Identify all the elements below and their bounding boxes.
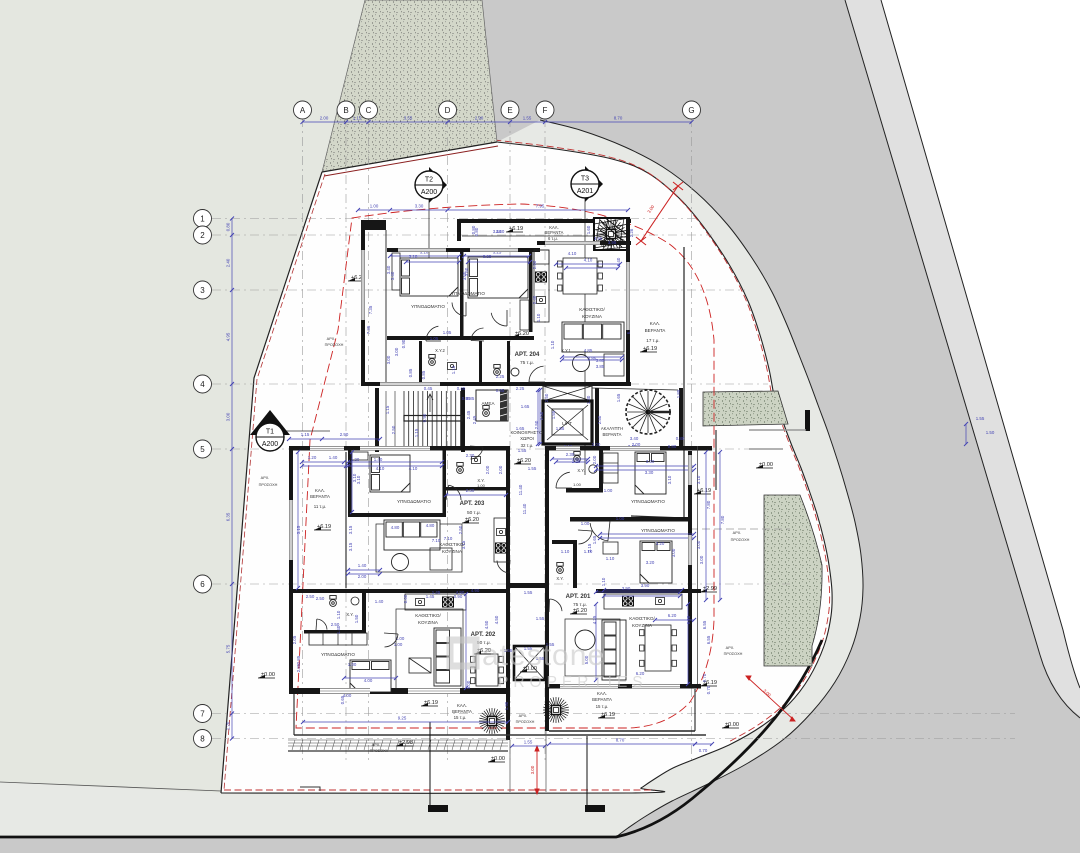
svg-text:A200: A200 [262,441,278,448]
svg-text:1.40: 1.40 [329,455,338,460]
svg-text:X.Y.2: X.Y.2 [435,348,445,353]
svg-text:1.40: 1.40 [375,599,384,604]
svg-text:1.55: 1.55 [976,416,985,421]
svg-text:2.50: 2.50 [458,525,463,534]
svg-text:1.50: 1.50 [354,614,359,623]
svg-text:1.15: 1.15 [353,116,362,121]
svg-text:6.55: 6.55 [702,620,707,629]
svg-text:3.00: 3.00 [394,347,399,356]
svg-text:3.90: 3.90 [622,586,631,591]
svg-text:ΠΡΟΣΟΧΗ: ΠΡΟΣΟΧΗ [370,749,389,753]
svg-text:2.05: 2.05 [292,635,297,644]
svg-text:ΒΕΡΑΝΤΑ: ΒΕΡΑΝΤΑ [592,697,612,702]
svg-text:1.55: 1.55 [551,410,556,419]
svg-text:3.40: 3.40 [386,265,391,274]
svg-text:2.00: 2.00 [592,455,597,464]
svg-text:0.85: 0.85 [421,370,426,379]
svg-text:2.40: 2.40 [532,295,537,304]
svg-text:ΚΑΛ.: ΚΑΛ. [650,321,660,326]
svg-text:1.65: 1.65 [521,404,530,409]
svg-text:1.10: 1.10 [561,549,570,554]
svg-text:0.65: 0.65 [340,695,345,704]
svg-text:±6.19: ±6.19 [601,712,615,718]
svg-text:±6.19: ±6.19 [424,700,438,706]
svg-text:ΑΡΤ. 203: ΑΡΤ. 203 [460,501,485,507]
svg-text:3.15: 3.15 [296,525,301,534]
svg-text:0.45: 0.45 [457,386,466,391]
svg-text:9.25: 9.25 [398,716,407,721]
svg-text:11 τ.μ.: 11 τ.μ. [314,504,326,509]
svg-text:0.60: 0.60 [403,594,408,603]
svg-text:±2.99: ±2.99 [703,586,717,592]
svg-text:0.70: 0.70 [699,748,708,753]
svg-text:ΥΠΝΟΔΩΜΑΤΙΟ: ΥΠΝΟΔΩΜΑΤΙΟ [411,304,445,309]
svg-text:3: 3 [200,286,205,295]
svg-text:3.00: 3.00 [671,548,676,557]
svg-text:0.80: 0.80 [676,436,685,441]
svg-text:17 τ.μ.: 17 τ.μ. [646,338,659,343]
svg-text:ΠΡΟΣΟΧΗ: ΠΡΟΣΟΧΗ [325,343,344,347]
svg-text:1.00: 1.00 [616,516,625,521]
svg-text:ΑΡΧ.: ΑΡΧ. [519,714,528,718]
svg-text:1: 1 [200,215,205,224]
svg-text:7.95: 7.95 [536,204,545,209]
svg-text:ΒΕΡΑΝΤΑ: ΒΕΡΑΝΤΑ [603,432,622,437]
svg-text:4.10: 4.10 [568,251,577,256]
svg-text:2.90: 2.90 [340,432,349,437]
svg-text:2.50: 2.50 [539,411,544,420]
svg-text:1.15: 1.15 [301,432,310,437]
svg-text:15 τ.μ.: 15 τ.μ. [454,715,467,720]
svg-text:1.05: 1.05 [430,336,439,341]
svg-text:1.15: 1.15 [385,405,390,414]
svg-text:2.00: 2.00 [485,465,490,474]
svg-text:PROPERTIES: PROPERTIES [498,674,648,691]
svg-text:3.20: 3.20 [646,560,655,565]
svg-text:ΠΡΟΣΟΧΗ: ΠΡΟΣΟΧΗ [516,720,535,724]
svg-text:1.55: 1.55 [518,448,527,453]
svg-text:2.30: 2.30 [566,452,575,457]
svg-text:4.50: 4.50 [484,620,489,629]
svg-text:ΠΡΟΣΟΧΗ: ΠΡΟΣΟΧΗ [259,483,278,487]
svg-text:A200: A200 [421,189,437,196]
svg-text:2.50: 2.50 [391,425,396,434]
svg-text:8.70: 8.70 [614,116,623,121]
svg-text:ΑΡΧ.: ΑΡΧ. [261,476,270,480]
svg-text:0.80: 0.80 [668,444,677,449]
svg-text:ΑΚΑΛΥΠΤΗ: ΑΚΑΛΥΠΤΗ [601,426,623,431]
svg-text:1.00: 1.00 [581,521,590,526]
svg-text:3.00: 3.00 [696,540,701,549]
svg-text:3.55: 3.55 [404,116,413,121]
svg-text:T3: T3 [581,176,589,183]
svg-text:5: 5 [200,445,205,454]
svg-text:3.00: 3.00 [386,355,391,364]
svg-text:1.40: 1.40 [336,625,341,634]
svg-text:1.40: 1.40 [358,563,367,568]
svg-text:2.00: 2.00 [592,442,601,447]
svg-text:ΒΕΡΑΝΤΑ: ΒΕΡΑΝΤΑ [545,230,564,235]
svg-text:1.00: 1.00 [394,642,403,647]
svg-text:15 τ.μ.: 15 τ.μ. [596,704,609,709]
svg-text:1.10: 1.10 [451,365,456,374]
svg-text:3.40: 3.40 [630,436,639,441]
svg-text:3.30: 3.30 [645,470,654,475]
svg-text:7.10: 7.10 [444,536,453,541]
svg-text:3.00: 3.00 [530,765,535,774]
svg-text:1.00: 1.00 [604,488,613,493]
svg-text:E: E [507,106,512,115]
svg-text:1.55: 1.55 [523,116,532,121]
svg-text:3.10: 3.10 [409,254,418,259]
svg-text:+6.19: +6.19 [317,524,331,530]
svg-text:2.30: 2.30 [466,453,475,458]
svg-text:3.85: 3.85 [596,364,605,369]
svg-text:1.50: 1.50 [986,430,995,435]
svg-text:0.45: 0.45 [424,386,433,391]
svg-text:2.40: 2.40 [616,257,621,266]
svg-text:3.25: 3.25 [483,254,492,259]
svg-text:ΥΠΝΟΔΩΜΑΤΙΟ: ΥΠΝΟΔΩΜΑΤΙΟ [451,291,485,296]
svg-text:0.70: 0.70 [702,673,707,682]
svg-text:3.60: 3.60 [462,271,467,280]
svg-text:ΚΑΛ.: ΚΑΛ. [597,691,607,696]
svg-text:ΥΠΝΟΔΩΜΑΤΙΟ: ΥΠΝΟΔΩΜΑΤΙΟ [397,499,431,504]
svg-text:ΑΡΧ.: ΑΡΧ. [372,743,381,747]
svg-text:±6.20: ±6.20 [515,331,529,337]
svg-text:1.55: 1.55 [556,426,565,431]
svg-text:2.50: 2.50 [306,594,315,599]
svg-text:0.70: 0.70 [706,685,711,694]
svg-text:2.50: 2.50 [597,415,602,424]
svg-text:2.45: 2.45 [472,415,477,424]
svg-text:7.10: 7.10 [432,538,441,543]
svg-text:2.15: 2.15 [587,543,592,552]
svg-text:±6.20: ±6.20 [573,608,587,614]
svg-text:4.10: 4.10 [376,466,385,471]
svg-text:atestone: atestone [482,639,605,672]
svg-text:2.85: 2.85 [296,663,301,672]
svg-text:0.85: 0.85 [462,396,471,401]
svg-text:3.10: 3.10 [696,475,701,484]
svg-text:7: 7 [200,710,205,719]
svg-text:ΧΩΡΟΙ: ΧΩΡΟΙ [520,436,534,441]
svg-text:2.30: 2.30 [466,488,475,493]
svg-text:2.90: 2.90 [475,116,484,121]
svg-text:1.00: 1.00 [573,482,582,487]
svg-text:3.15: 3.15 [461,540,466,549]
svg-text:3.10: 3.10 [352,473,357,482]
svg-text:2.00: 2.00 [320,116,329,121]
svg-text:4.95: 4.95 [226,332,231,341]
svg-text:6: 6 [200,580,205,589]
svg-text:6.55: 6.55 [706,635,711,644]
svg-text:1.45: 1.45 [426,594,435,599]
svg-text:2.85: 2.85 [296,655,301,664]
svg-text:1.65: 1.65 [592,535,597,544]
svg-text:3.15: 3.15 [348,542,353,551]
svg-text:ΑΡΧ.: ΑΡΧ. [327,337,336,341]
svg-text:3.30: 3.30 [646,459,655,464]
svg-text:+6.19: +6.19 [697,488,711,494]
svg-text:7.80: 7.80 [720,515,725,524]
svg-text:1.05: 1.05 [443,330,452,335]
svg-text:ΒΕΡΑΝΤΑ: ΒΕΡΑΝΤΑ [310,494,330,499]
svg-text:1.20: 1.20 [226,721,231,730]
svg-text:ΑΡΧ.: ΑΡΧ. [733,531,742,535]
svg-text:D: D [445,106,451,115]
svg-text:F: F [543,106,548,115]
svg-text:1.20: 1.20 [308,455,317,460]
svg-text:2.20: 2.20 [572,459,581,464]
svg-text:2.45: 2.45 [466,410,471,419]
svg-text:3.10: 3.10 [667,475,672,484]
svg-text:0.80: 0.80 [226,222,231,231]
svg-text:4.90: 4.90 [471,588,480,593]
svg-text:2.50: 2.50 [316,596,325,601]
svg-text:ΚΟΥΖΙΝΑ: ΚΟΥΖΙΝΑ [418,620,439,625]
svg-text:1.30: 1.30 [586,395,591,404]
svg-text:3.00: 3.00 [699,555,704,564]
svg-text:ΚΟΥΖΙΝΑ: ΚΟΥΖΙΝΑ [632,623,653,628]
svg-text:75 τ.μ.: 75 τ.μ. [520,360,534,366]
svg-text:4.80: 4.80 [426,523,435,528]
svg-text:2.50: 2.50 [544,393,549,402]
svg-text:±0.00: ±0.00 [491,756,505,762]
svg-text:1.00: 1.00 [477,483,486,488]
svg-text:+6.19: +6.19 [509,226,523,232]
svg-text:ΥΠΝΟΔΩΜΑΤΙΟ: ΥΠΝΟΔΩΜΑΤΙΟ [321,652,355,657]
svg-text:±6.20: ±6.20 [465,517,479,523]
svg-text:1.40: 1.40 [374,457,383,462]
svg-text:1.85: 1.85 [676,389,681,398]
svg-text:1.10: 1.10 [536,313,541,322]
svg-text:2.00: 2.00 [498,465,503,474]
svg-text:2.26: 2.26 [629,228,634,237]
svg-text:1.10: 1.10 [550,340,555,349]
svg-text:X.Y.1: X.Y.1 [561,348,571,353]
svg-text:3.15: 3.15 [348,525,353,534]
svg-text:4.10: 4.10 [409,466,418,471]
svg-text:3.90: 3.90 [641,583,650,588]
svg-text:4.80: 4.80 [391,525,400,530]
svg-text:7.35: 7.35 [368,305,373,314]
svg-text:2.25: 2.25 [496,374,505,379]
svg-text:11.40: 11.40 [518,484,523,495]
svg-text:3.40: 3.40 [493,229,502,234]
svg-text:4.90: 4.90 [456,590,465,595]
svg-text:±0.00: ±0.00 [759,462,773,468]
svg-text:4.85: 4.85 [584,348,593,353]
svg-text:1.90: 1.90 [504,701,509,710]
svg-text:4: 4 [200,380,205,389]
svg-text:0.85: 0.85 [496,388,505,393]
svg-text:8.70: 8.70 [616,738,625,743]
svg-text:0.90: 0.90 [401,339,406,348]
svg-text:ΥΠΝΟΔΩΜΑΤΙΟ: ΥΠΝΟΔΩΜΑΤΙΟ [641,528,675,533]
svg-text:ΚΑΘΙΣΤΙΚΟ/: ΚΑΘΙΣΤΙΚΟ/ [415,613,441,618]
svg-text:3.85: 3.85 [596,358,605,363]
svg-text:75 τ.μ.: 75 τ.μ. [573,602,587,608]
svg-text:±6.20: ±6.20 [517,458,531,464]
svg-text:7.80: 7.80 [706,500,711,509]
svg-text:8: 8 [200,735,205,744]
svg-text:1.00: 1.00 [348,662,357,667]
svg-text:4.00: 4.00 [364,678,373,683]
svg-text:ΚΑΛ.: ΚΑΛ. [457,703,467,708]
svg-text:6.35: 6.35 [226,512,231,521]
svg-text:7.35: 7.35 [366,325,371,334]
svg-text:ΚΑΛ.: ΚΑΛ. [315,488,325,493]
svg-text:X.Y.: X.Y. [346,612,353,617]
svg-text:ΒΕΡΑΝΤΑ: ΒΕΡΑΝΤΑ [645,328,667,333]
svg-text:B: B [343,106,348,115]
svg-text:C: C [366,106,372,115]
svg-text:1.55: 1.55 [536,616,545,621]
svg-text:3.30: 3.30 [415,204,424,209]
svg-text:1.55: 1.55 [524,740,533,745]
svg-text:6.20: 6.20 [668,613,677,618]
svg-text:1.15: 1.15 [414,428,419,437]
svg-text:A201: A201 [577,188,593,195]
svg-text:11.40: 11.40 [522,503,527,514]
svg-text:±0.00: ±0.00 [261,672,275,678]
svg-text:2: 2 [200,231,205,240]
svg-text:+6.19: +6.19 [643,346,657,352]
svg-text:±0.00: ±0.00 [725,722,739,728]
svg-text:ΚΟΥΖΙΝΑ: ΚΟΥΖΙΝΑ [582,314,603,319]
svg-text:ΚΟΥΖΙΝΑ: ΚΟΥΖΙΝΑ [442,549,463,554]
svg-text:1.00: 1.00 [370,204,379,209]
svg-text:ΑΡΤ. 201: ΑΡΤ. 201 [566,594,591,600]
svg-text:4.10: 4.10 [584,258,593,263]
svg-text:X.Y.: X.Y. [556,576,563,581]
svg-text:1.55: 1.55 [524,590,533,595]
svg-text:3.95: 3.95 [594,236,603,241]
svg-text:1.65: 1.65 [616,393,621,402]
svg-text:0.90: 0.90 [422,413,427,422]
svg-text:ΚΑΘΙΣΤΙΚΟ/: ΚΑΘΙΣΤΙΚΟ/ [629,616,655,621]
svg-text:X.Y.: X.Y. [577,468,584,473]
svg-text:2.00: 2.00 [358,574,367,579]
svg-text:0.80: 0.80 [474,227,479,236]
svg-text:ΠΡΟΣΟΧΗ: ΠΡΟΣΟΧΗ [724,652,743,656]
svg-text:T2: T2 [425,177,433,184]
svg-text:1.65: 1.65 [516,426,525,431]
svg-text:T1: T1 [266,429,274,436]
svg-text:1.10: 1.10 [601,577,606,586]
svg-text:ΒΕΡΑΝΤΑ: ΒΕΡΑΝΤΑ [452,709,472,714]
svg-text:2.25: 2.25 [516,386,525,391]
svg-text:6.20: 6.20 [686,615,691,624]
svg-text:2.40: 2.40 [226,258,231,267]
svg-text:2.50: 2.50 [532,260,537,269]
svg-text:ΑΡΤ. 204: ΑΡΤ. 204 [515,352,540,358]
svg-text:1.60: 1.60 [586,225,591,234]
svg-text:3.00: 3.00 [226,412,231,421]
svg-text:A: A [300,106,306,115]
svg-text:G: G [688,106,694,115]
svg-text:5.75: 5.75 [226,644,231,653]
svg-text:50 τ.μ.: 50 τ.μ. [467,510,481,516]
svg-text:ΚΑΘΙΣΤΙΚΟ/: ΚΑΘΙΣΤΙΚΟ/ [579,307,605,312]
svg-text:ΠΡΟΣΟΧΗ: ΠΡΟΣΟΧΗ [731,538,750,542]
svg-text:1.10: 1.10 [336,610,341,619]
svg-text:ΥΠΝΟΔΩΜΑΤΙΟ: ΥΠΝΟΔΩΜΑΤΙΟ [631,499,665,504]
svg-text:3.20: 3.20 [656,541,665,546]
svg-text:6 τ.μ.: 6 τ.μ. [548,236,558,241]
svg-text:3.95: 3.95 [608,240,617,245]
svg-text:ΑΡΧ.: ΑΡΧ. [726,646,735,650]
svg-text:1.10: 1.10 [606,556,615,561]
svg-text:±2.98: ±2.98 [399,740,413,746]
svg-text:1.55: 1.55 [528,466,537,471]
svg-text:4.50: 4.50 [494,615,499,624]
svg-text:0.85: 0.85 [408,368,413,377]
